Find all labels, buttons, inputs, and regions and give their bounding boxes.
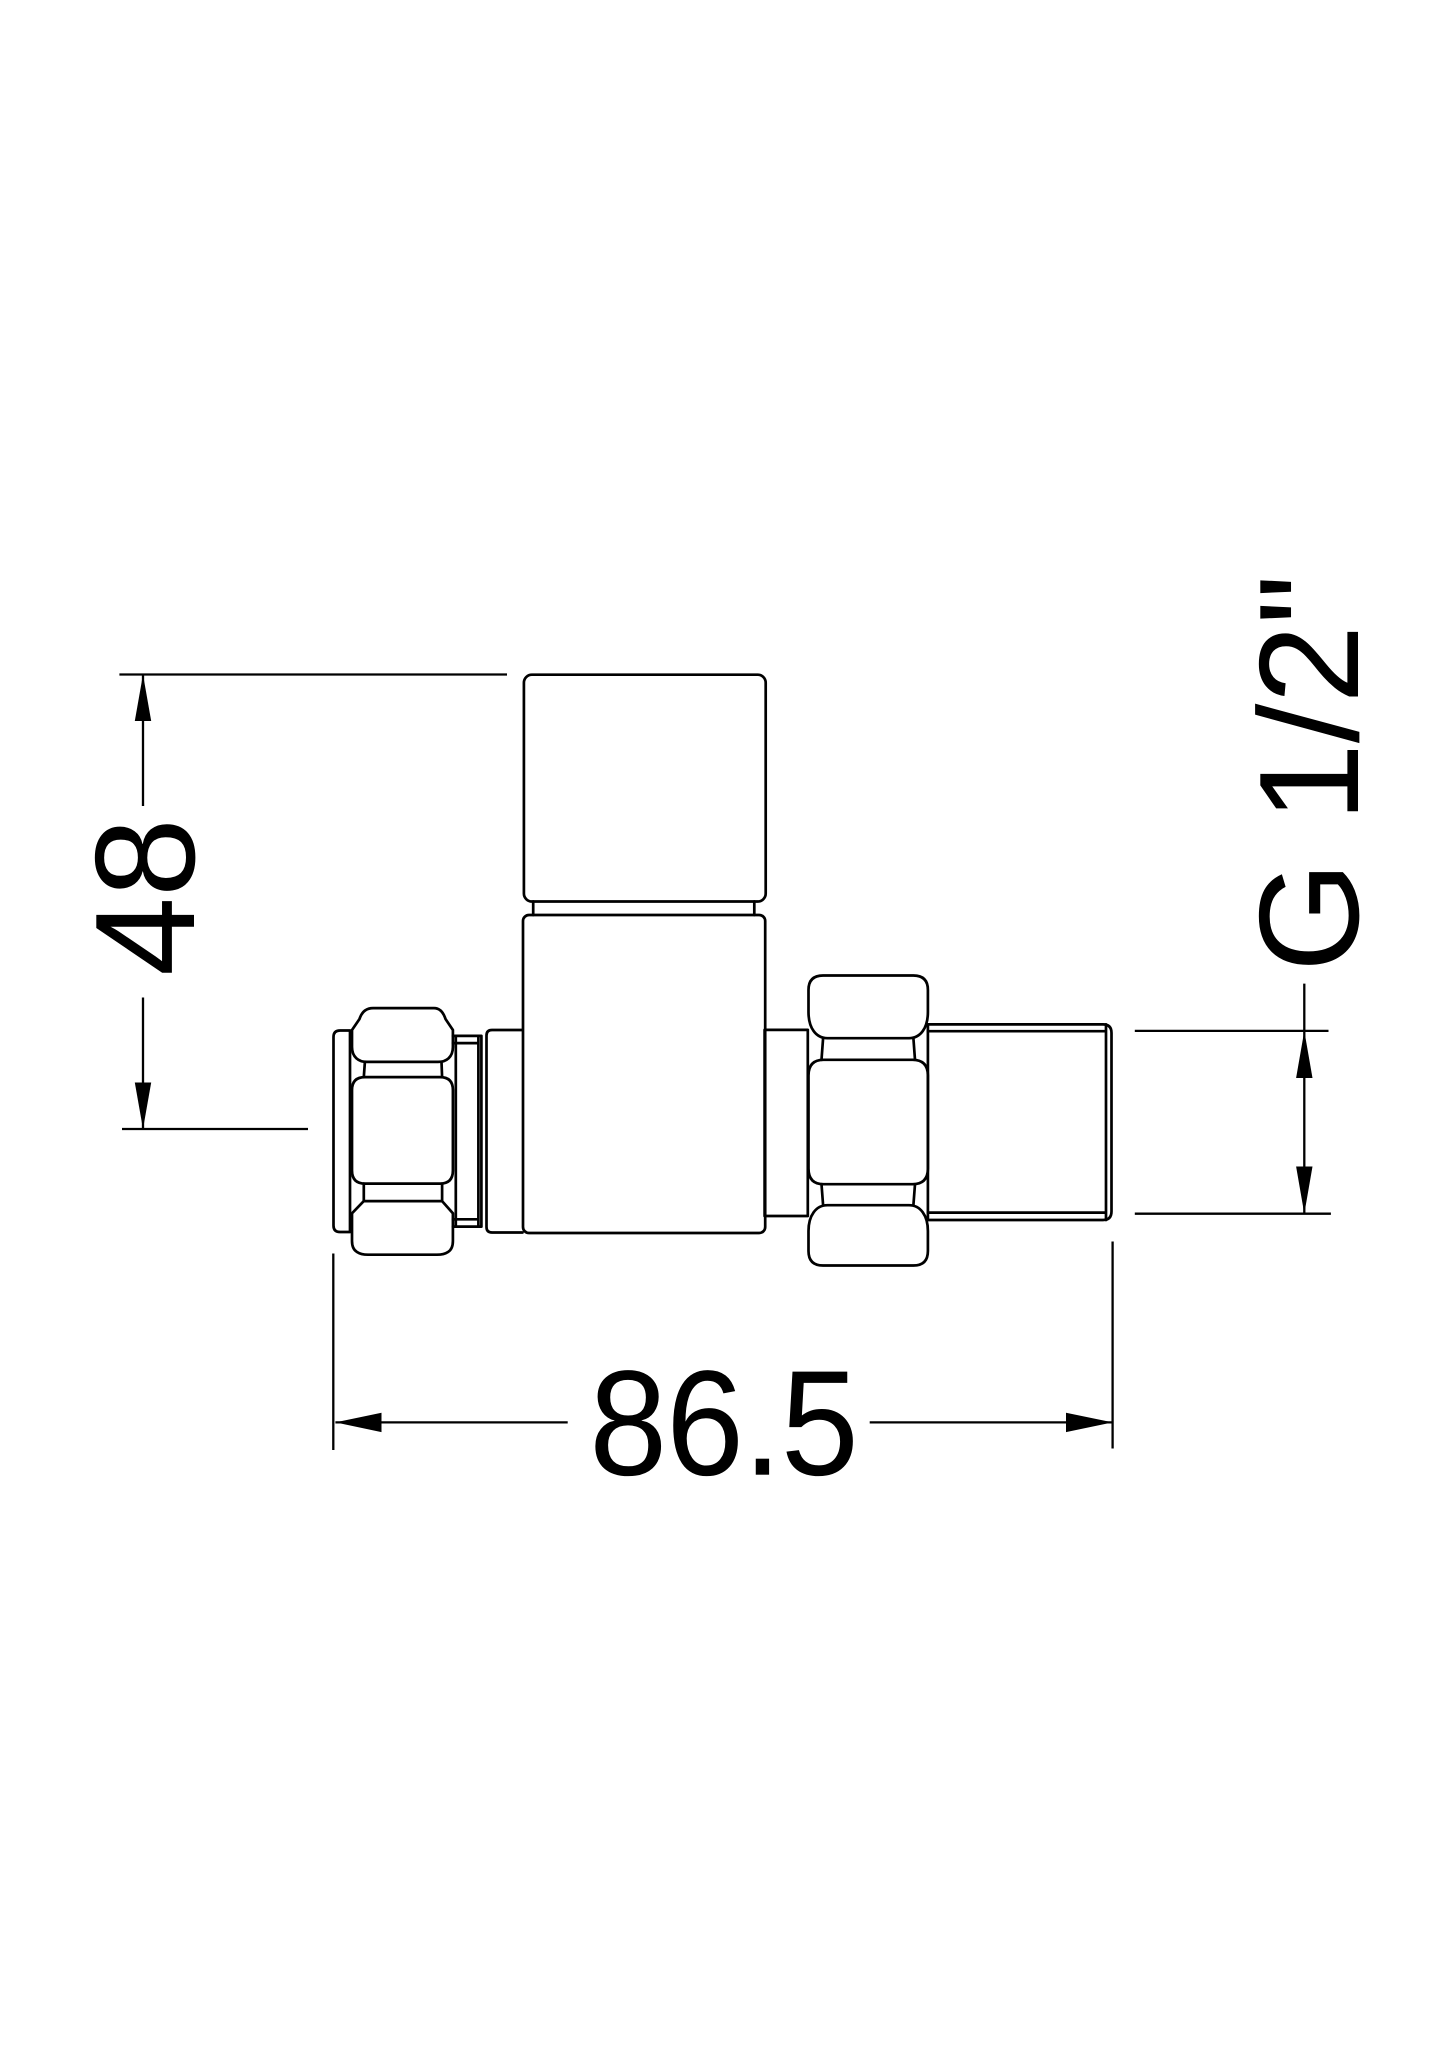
svg-text:48: 48 <box>66 818 225 976</box>
svg-text:86.5: 86.5 <box>589 1339 857 1506</box>
svg-text:G 1/2": G 1/2" <box>1230 574 1389 972</box>
